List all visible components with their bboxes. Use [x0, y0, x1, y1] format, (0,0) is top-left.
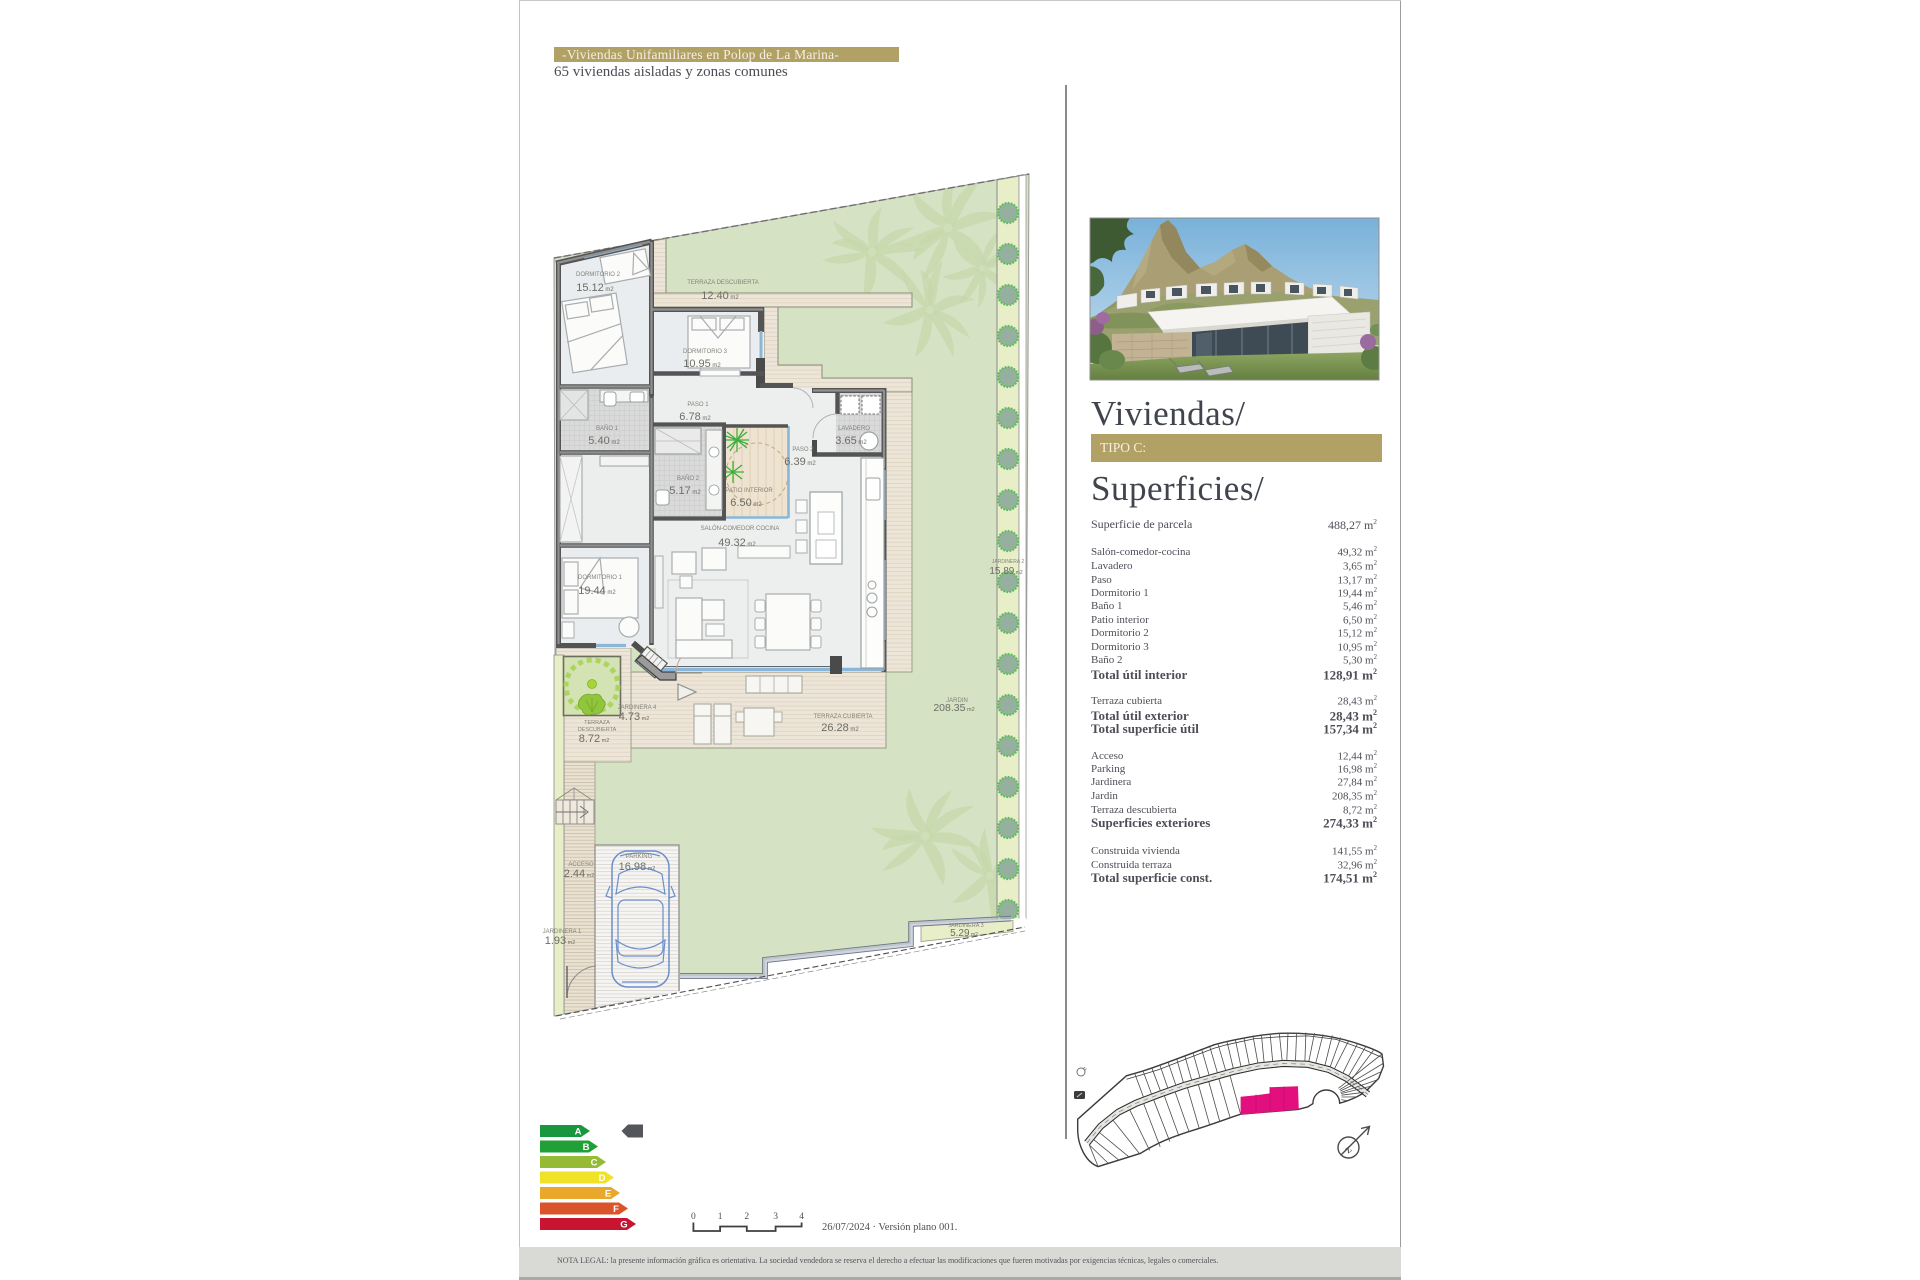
svg-text:LAVADERO: LAVADERO — [838, 426, 870, 432]
svg-text:DORMITORIO 2: DORMITORIO 2 — [576, 272, 621, 278]
svg-text:BAÑO 2: BAÑO 2 — [677, 475, 700, 482]
svg-text:PATIO INTERIOR: PATIO INTERIOR — [725, 488, 773, 494]
svg-text:D: D — [599, 1173, 606, 1184]
svg-text:PASO 2: PASO 2 — [792, 447, 814, 453]
svg-text:E: E — [605, 1189, 611, 1200]
svg-text:TERRAZA CUBIERTA: TERRAZA CUBIERTA — [813, 714, 872, 720]
svg-text:0: 0 — [691, 1212, 696, 1222]
svg-text:PASO 1: PASO 1 — [687, 402, 709, 408]
svg-text:26/07/2024 · Versión plano 001: 26/07/2024 · Versión plano 001. — [822, 1222, 957, 1233]
svg-text:4: 4 — [799, 1212, 804, 1222]
svg-text:PARKING: PARKING — [626, 854, 653, 860]
svg-text:TERRAZA: TERRAZA — [584, 720, 610, 726]
svg-text:SALÓN-COMEDOR COCINA: SALÓN-COMEDOR COCINA — [701, 525, 780, 532]
svg-text:TERRAZA DESCUBIERTA: TERRAZA DESCUBIERTA — [687, 280, 758, 286]
svg-text:A: A — [575, 1127, 582, 1138]
svg-text:BAÑO 1: BAÑO 1 — [596, 425, 619, 432]
svg-text:JARDINERA 2: JARDINERA 2 — [992, 559, 1024, 565]
svg-text:C: C — [591, 1158, 598, 1169]
svg-text:DORMITORIO 1: DORMITORIO 1 — [578, 575, 623, 581]
svg-text:G: G — [620, 1220, 627, 1231]
svg-text:F: F — [613, 1204, 619, 1215]
svg-text:B: B — [583, 1142, 590, 1153]
svg-text:1: 1 — [718, 1212, 723, 1222]
svg-text:DORMITORIO 3: DORMITORIO 3 — [683, 349, 728, 355]
svg-text:3: 3 — [773, 1212, 778, 1222]
svg-text:2: 2 — [744, 1212, 749, 1222]
